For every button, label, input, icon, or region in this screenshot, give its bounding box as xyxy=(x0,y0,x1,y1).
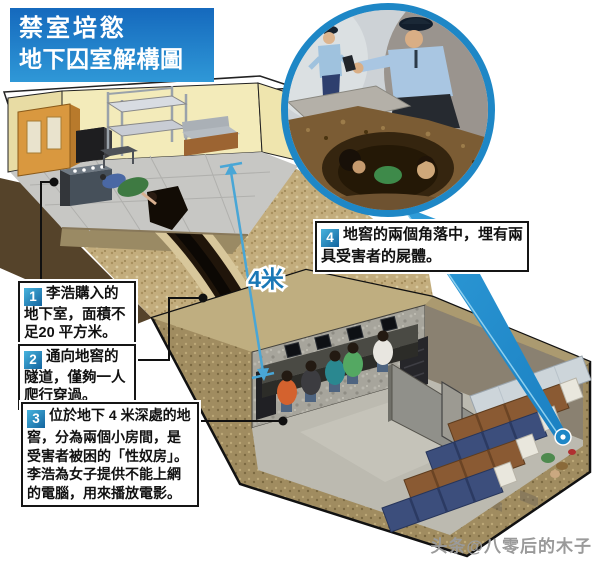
watermark: 头条@八零后的木子 xyxy=(430,532,592,557)
title-block: 禁室培慾 地下囚室解構圖 xyxy=(10,8,214,82)
note-3-badge: 3 xyxy=(27,410,45,428)
wardrobe xyxy=(18,104,80,176)
title-line-1: 禁室培慾 xyxy=(19,13,205,44)
note-3-text: 位於地下 4 米深處的地窖，分為兩個小房間，是受害者被困的「性奴房」。李浩為女子… xyxy=(27,407,191,501)
note-2-badge: 2 xyxy=(24,351,42,369)
infographic-root: 4米 禁室培慾 地下囚室解構圖 xyxy=(0,0,600,571)
note-4-badge: 4 xyxy=(321,229,339,247)
note-4-bodies: 4地窖的兩個角落中，埋有兩具受害者的屍體。 xyxy=(315,221,529,272)
cellar-block xyxy=(152,270,591,556)
excavation-scene xyxy=(288,10,488,210)
excavation-photo-inset xyxy=(281,3,495,217)
depth-label: 4米 xyxy=(248,266,285,292)
note-1-basement: 1李浩購入的地下室，面積不足20 平方米。 xyxy=(18,281,136,347)
note-4-text: 地窖的兩個角落中，埋有兩具受害者的屍體。 xyxy=(321,226,523,265)
tv-cabinet xyxy=(76,127,112,163)
title-line-2: 地下囚室解構圖 xyxy=(19,44,205,74)
ground-floor-room xyxy=(4,76,298,235)
note-1-badge: 1 xyxy=(24,288,42,306)
note-3-cellar: 3位於地下 4 米深處的地窖，分為兩個小房間，是受害者被困的「性奴房」。李浩為女… xyxy=(21,402,199,507)
note-2-tunnel: 2通向地窖的隧道，僅夠一人爬行穿過。 xyxy=(18,344,136,410)
